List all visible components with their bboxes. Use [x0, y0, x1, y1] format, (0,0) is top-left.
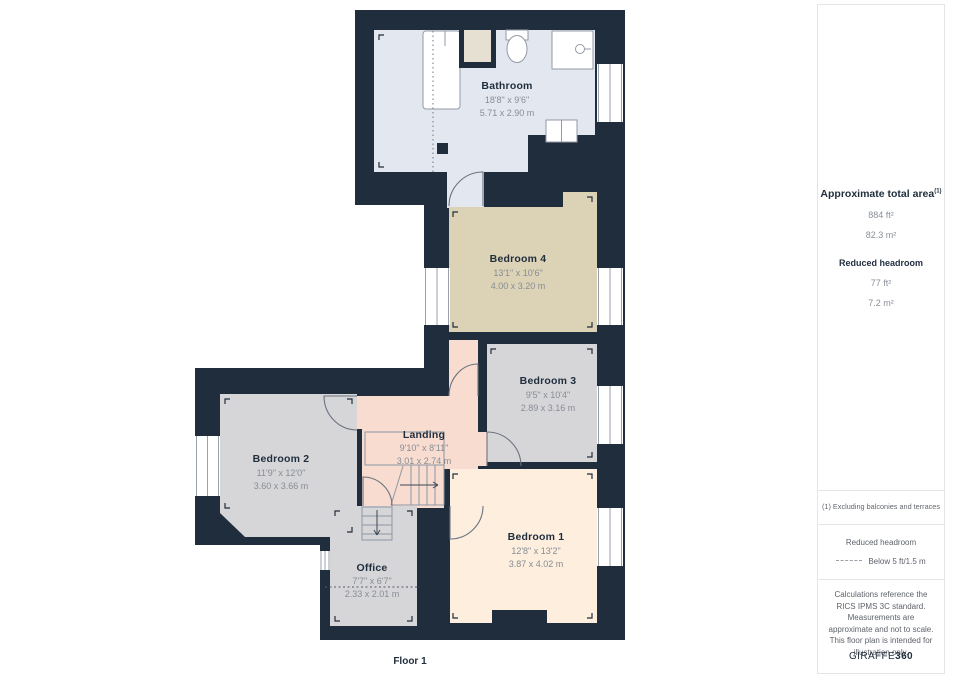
- info-sidebar: Approximate total area(1) 884 ft² 82.3 m…: [817, 4, 945, 674]
- landing-door-gap-bedroom2: [357, 396, 362, 429]
- window: [597, 268, 623, 325]
- reduced-headroom-title: Reduced headroom: [818, 258, 944, 268]
- total-area-label: Approximate total area: [820, 188, 934, 200]
- room-label-bedroom1: Bedroom 1 12'8" x 13'2" 3.87 x 4.02 m: [508, 531, 565, 569]
- window: [597, 386, 623, 444]
- window: [597, 64, 623, 122]
- room-dimensions-imperial: 11'9" x 12'0": [257, 468, 306, 478]
- window: [195, 436, 220, 496]
- floor-label: Floor 1: [380, 656, 440, 667]
- total-area-title: Approximate total area(1): [818, 188, 944, 200]
- room-dimensions-metric: 5.71 x 2.90 m: [480, 108, 535, 118]
- room-name: Bedroom 3: [520, 375, 577, 387]
- room-dimensions-imperial: 18'8" x 9'6": [485, 95, 529, 105]
- legend-row: Below 5 ft/1.5 m: [818, 557, 944, 566]
- room-dimensions-imperial: 9'10" x 8'11": [400, 443, 449, 453]
- area-summary: Approximate total area(1) 884 ft² 82.3 m…: [818, 188, 944, 308]
- room-name: Bedroom 1: [508, 531, 565, 543]
- reduced-headroom-ft: 77 ft²: [818, 278, 944, 288]
- room-dimensions-metric: 2.89 x 3.16 m: [521, 403, 576, 413]
- divider: [818, 524, 944, 525]
- room-name: Office: [357, 562, 388, 574]
- room-label-bedroom3: Bedroom 3 9'5" x 10'4" 2.89 x 3.16 m: [520, 375, 577, 413]
- room-dimensions-metric: 3.60 x 3.66 m: [254, 481, 309, 491]
- legend-value: Below 5 ft/1.5 m: [868, 557, 925, 566]
- area-footnote: (1) Excluding balconies and terraces: [818, 502, 944, 511]
- total-area-m: 82.3 m²: [818, 230, 944, 240]
- bathtub-icon: [423, 31, 460, 109]
- logo-text-giraffe: GIRAFFE: [849, 651, 895, 662]
- room-name: Bedroom 2: [253, 453, 310, 465]
- room-dimensions-metric: 2.33 x 2.01 m: [345, 589, 400, 599]
- window: [424, 268, 450, 325]
- room-dimensions-metric: 3.01 x 2.74 m: [397, 456, 452, 466]
- room-name: Landing: [403, 429, 445, 441]
- disclaimer-text: Calculations reference the RICS IPMS 3C …: [818, 589, 944, 659]
- dashed-line-icon: [836, 560, 862, 561]
- divider: [818, 579, 944, 580]
- landing-stub-floor: [449, 340, 478, 398]
- room-label-landing: Landing 9'10" x 8'11" 3.01 x 2.74 m: [397, 429, 452, 466]
- bathroom-corridor-floor: [447, 170, 484, 208]
- window: [320, 551, 330, 570]
- chimney-alcove-inner: [464, 30, 491, 62]
- logo-text-360: 360: [895, 651, 913, 662]
- room-name: Bedroom 4: [490, 253, 547, 265]
- room-dimensions-imperial: 7'7" x 6'7": [352, 576, 391, 586]
- legend-title: Reduced headroom: [818, 538, 944, 547]
- window: [597, 508, 623, 566]
- giraffe360-logo: GIRAFFE360: [818, 651, 944, 662]
- toilet-icon: [506, 30, 528, 63]
- shower-icon: [552, 31, 593, 69]
- sink-icon: [546, 120, 577, 142]
- floor-plan-svg: Bathroom 18'8" x 9'6" 5.71 x 2.90 m Bedr…: [0, 0, 810, 683]
- flue-square: [437, 143, 448, 154]
- room-dimensions-imperial: 13'1" x 10'6": [493, 268, 542, 278]
- room-label-bedroom4: Bedroom 4 13'1" x 10'6" 4.00 x 3.20 m: [490, 253, 547, 291]
- landing-door-gap-bedroom3: [478, 432, 487, 466]
- floor-plan-page: Bathroom 18'8" x 9'6" 5.71 x 2.90 m Bedr…: [0, 0, 965, 683]
- total-area-ft: 884 ft²: [818, 210, 944, 220]
- room-dimensions-metric: 4.00 x 3.20 m: [491, 281, 546, 291]
- room-dimensions-imperial: 9'5" x 10'4": [526, 390, 570, 400]
- total-area-superscript: (1): [934, 189, 941, 195]
- room-dimensions-imperial: 12'8" x 13'2": [511, 546, 560, 556]
- room-name: Bathroom: [481, 80, 532, 92]
- room-label-bedroom2: Bedroom 2 11'9" x 12'0" 3.60 x 3.66 m: [253, 453, 310, 491]
- room-label-bathroom: Bathroom 18'8" x 9'6" 5.71 x 2.90 m: [480, 80, 535, 118]
- room-dimensions-metric: 3.87 x 4.02 m: [509, 559, 564, 569]
- divider: [818, 490, 944, 491]
- reduced-headroom-m: 7.2 m²: [818, 298, 944, 308]
- stairs-down-icon: [362, 507, 392, 540]
